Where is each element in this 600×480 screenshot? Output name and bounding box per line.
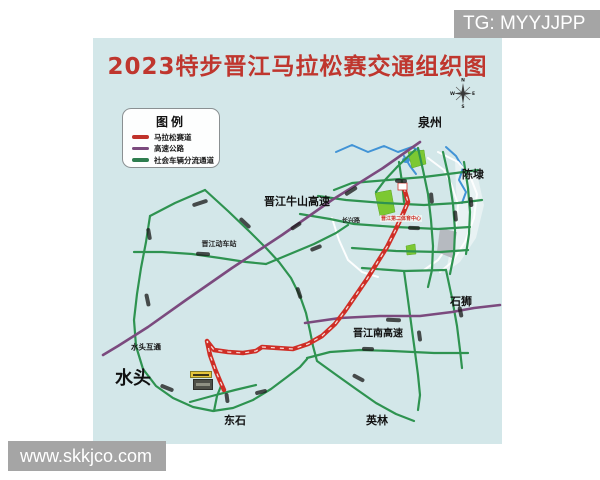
watermark-website: www.skkjco.com [8, 441, 166, 471]
legend-item-diversion: 社会车辆分流通道 [132, 156, 219, 165]
label-yinglin: 英林 [366, 412, 388, 428]
road-label-smudge [386, 318, 401, 323]
watermark-telegram: TG: MYYJJPP [454, 10, 600, 38]
compass-rose: N W E S [450, 77, 476, 113]
start-marker [398, 183, 407, 190]
road-label-smudge [408, 226, 420, 230]
label-south-expressway: 晋江南高速 [353, 325, 403, 340]
marathon-route-swatch [132, 135, 149, 139]
map-title: 2023特步晋江马拉松赛交通组织图 [93, 47, 502, 81]
label-quanzhou: 泉州 [418, 114, 442, 131]
compass-e: E [472, 91, 475, 97]
road-label-smudge [362, 347, 374, 351]
legend-item-expressway: 高速公路 [132, 144, 219, 153]
label-start-point: 晋江第二体育中心 [380, 215, 422, 222]
compass-n: N [461, 78, 465, 84]
road-label-smudge [395, 179, 407, 183]
label-chendai: 陈埭 [462, 166, 484, 182]
screenshot-stage: 2023特步晋江马拉松赛交通组织图 图例 马拉松赛道 高速公路 社会车辆分流通道… [0, 0, 600, 480]
legend-title: 图例 [123, 113, 219, 130]
landmark-sign [190, 371, 212, 378]
legend-item-marathon: 马拉松赛道 [132, 133, 219, 142]
label-shuitou: 水头 [115, 364, 151, 390]
label-shuitou-interchange: 水头互通 [131, 342, 161, 353]
road-label-smudge [196, 252, 210, 257]
diversion-road-swatch [132, 158, 149, 162]
landmark-photo [193, 379, 213, 390]
compass-w: W [450, 91, 455, 97]
expressway-swatch [132, 147, 149, 151]
label-niushan-expressway: 晋江牛山高速 [264, 193, 330, 209]
label-dongshi: 东石 [224, 412, 246, 428]
label-changxing-road: 长兴路 [342, 216, 360, 225]
compass-s: S [461, 104, 464, 109]
label-train-station: 晋江动车站 [202, 239, 237, 249]
legend-box: 图例 马拉松赛道 高速公路 社会车辆分流通道 [122, 108, 220, 168]
